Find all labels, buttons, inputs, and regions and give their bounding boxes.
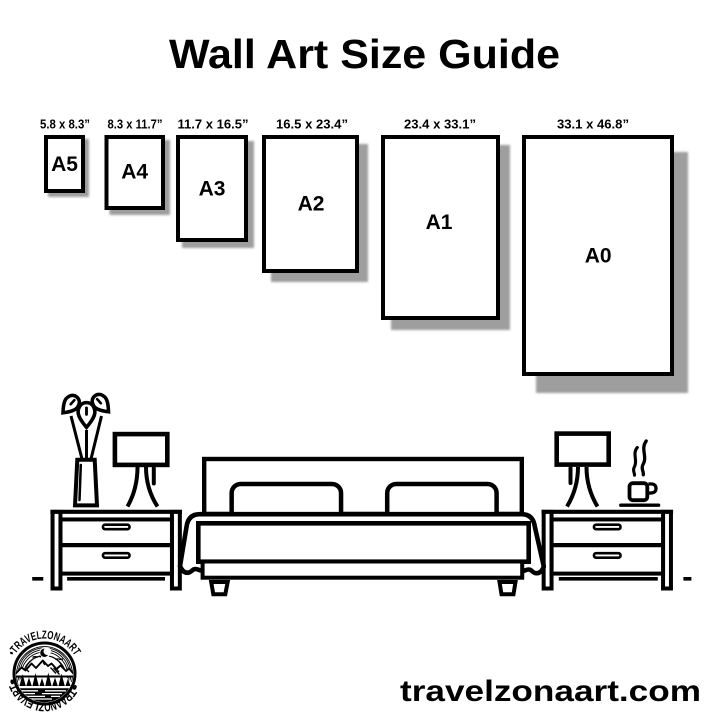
- svg-text:16.5 x 23.4”: 16.5 x 23.4”: [276, 117, 348, 132]
- svg-text:travelzonaart.com: travelzonaart.com: [400, 675, 701, 708]
- svg-text:23.4 x 33.1”: 23.4 x 33.1”: [404, 117, 476, 132]
- svg-text:A0: A0: [585, 245, 612, 268]
- svg-text:A2: A2: [298, 193, 325, 216]
- svg-text:A5: A5: [51, 153, 78, 176]
- svg-text:A1: A1: [426, 211, 453, 234]
- svg-text:5.8 x 8.3”: 5.8 x 8.3”: [40, 117, 90, 132]
- svg-text:A3: A3: [199, 177, 226, 200]
- svg-text:11.7 x 16.5”: 11.7 x 16.5”: [178, 117, 249, 132]
- svg-text:A4: A4: [121, 160, 148, 183]
- svg-text:33.1 x 46.8”: 33.1 x 46.8”: [557, 117, 629, 132]
- svg-text:8.3 x 11.7”: 8.3 x 11.7”: [108, 117, 163, 132]
- svg-text:Wall Art Size Guide: Wall Art Size Guide: [169, 31, 560, 77]
